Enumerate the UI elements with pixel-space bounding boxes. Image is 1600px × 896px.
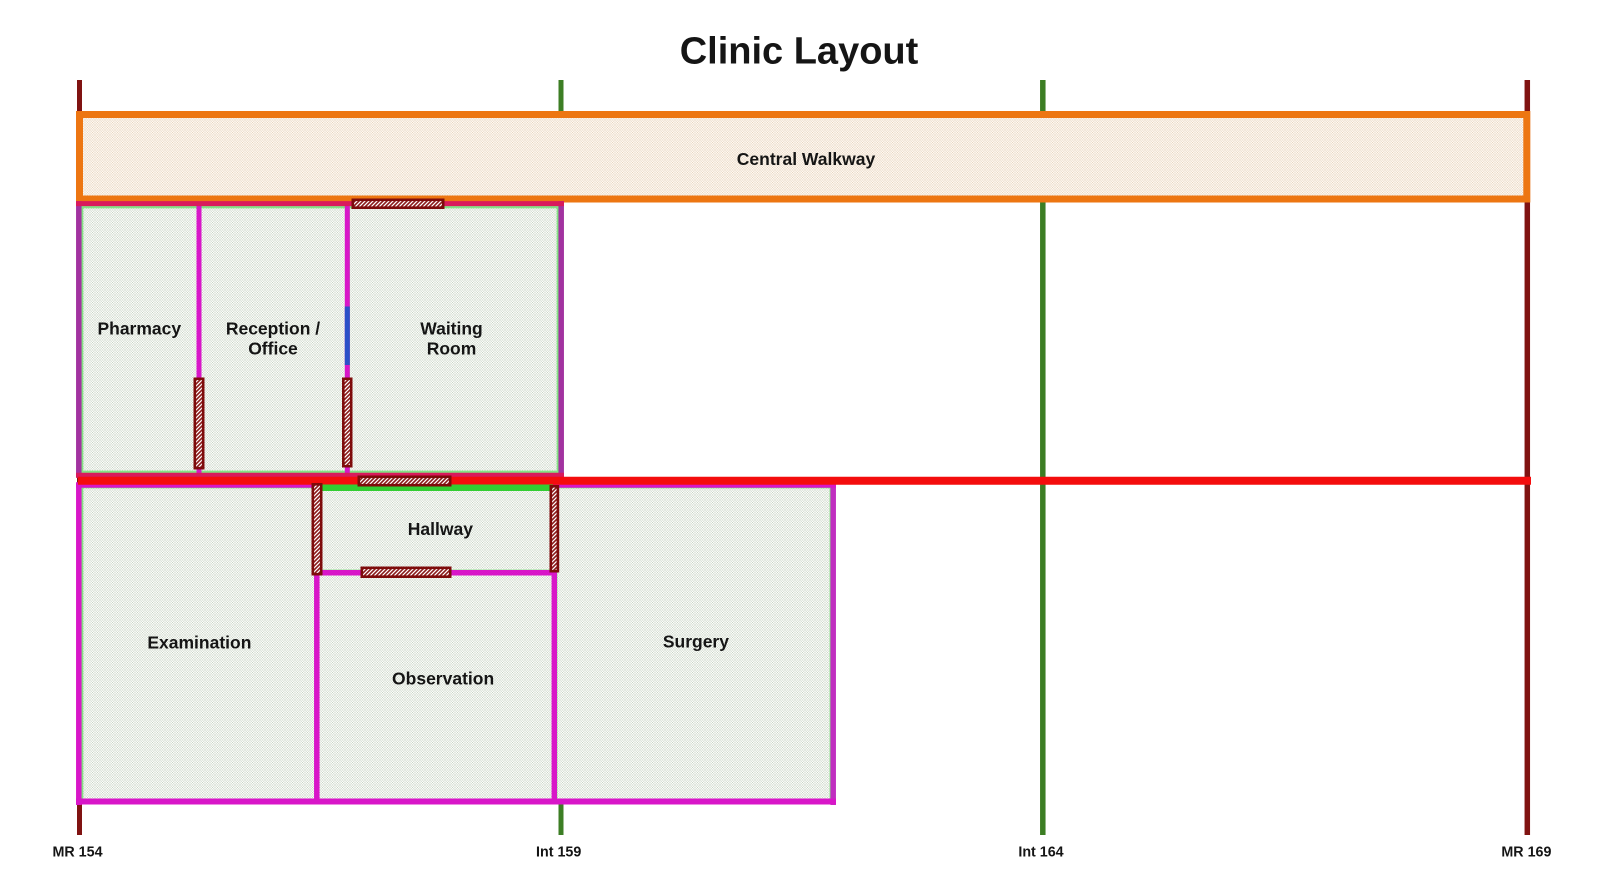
svg-text:Examination: Examination bbox=[147, 633, 251, 653]
svg-text:Int 159: Int 159 bbox=[536, 845, 581, 861]
svg-text:Central Walkway: Central Walkway bbox=[737, 149, 876, 169]
svg-text:Clinic Layout: Clinic Layout bbox=[680, 31, 919, 73]
svg-text:Waiting: Waiting bbox=[420, 318, 483, 338]
svg-text:Office: Office bbox=[248, 338, 298, 358]
svg-text:Hallway: Hallway bbox=[408, 519, 473, 539]
svg-text:Int 164: Int 164 bbox=[1018, 845, 1063, 861]
svg-text:Room: Room bbox=[427, 338, 477, 358]
svg-text:MR 169: MR 169 bbox=[1501, 845, 1551, 861]
svg-text:Reception /: Reception / bbox=[226, 318, 320, 338]
svg-text:Observation: Observation bbox=[392, 668, 494, 688]
svg-text:MR 154: MR 154 bbox=[52, 845, 102, 861]
svg-text:Pharmacy: Pharmacy bbox=[97, 318, 181, 338]
svg-text:Surgery: Surgery bbox=[663, 631, 729, 651]
